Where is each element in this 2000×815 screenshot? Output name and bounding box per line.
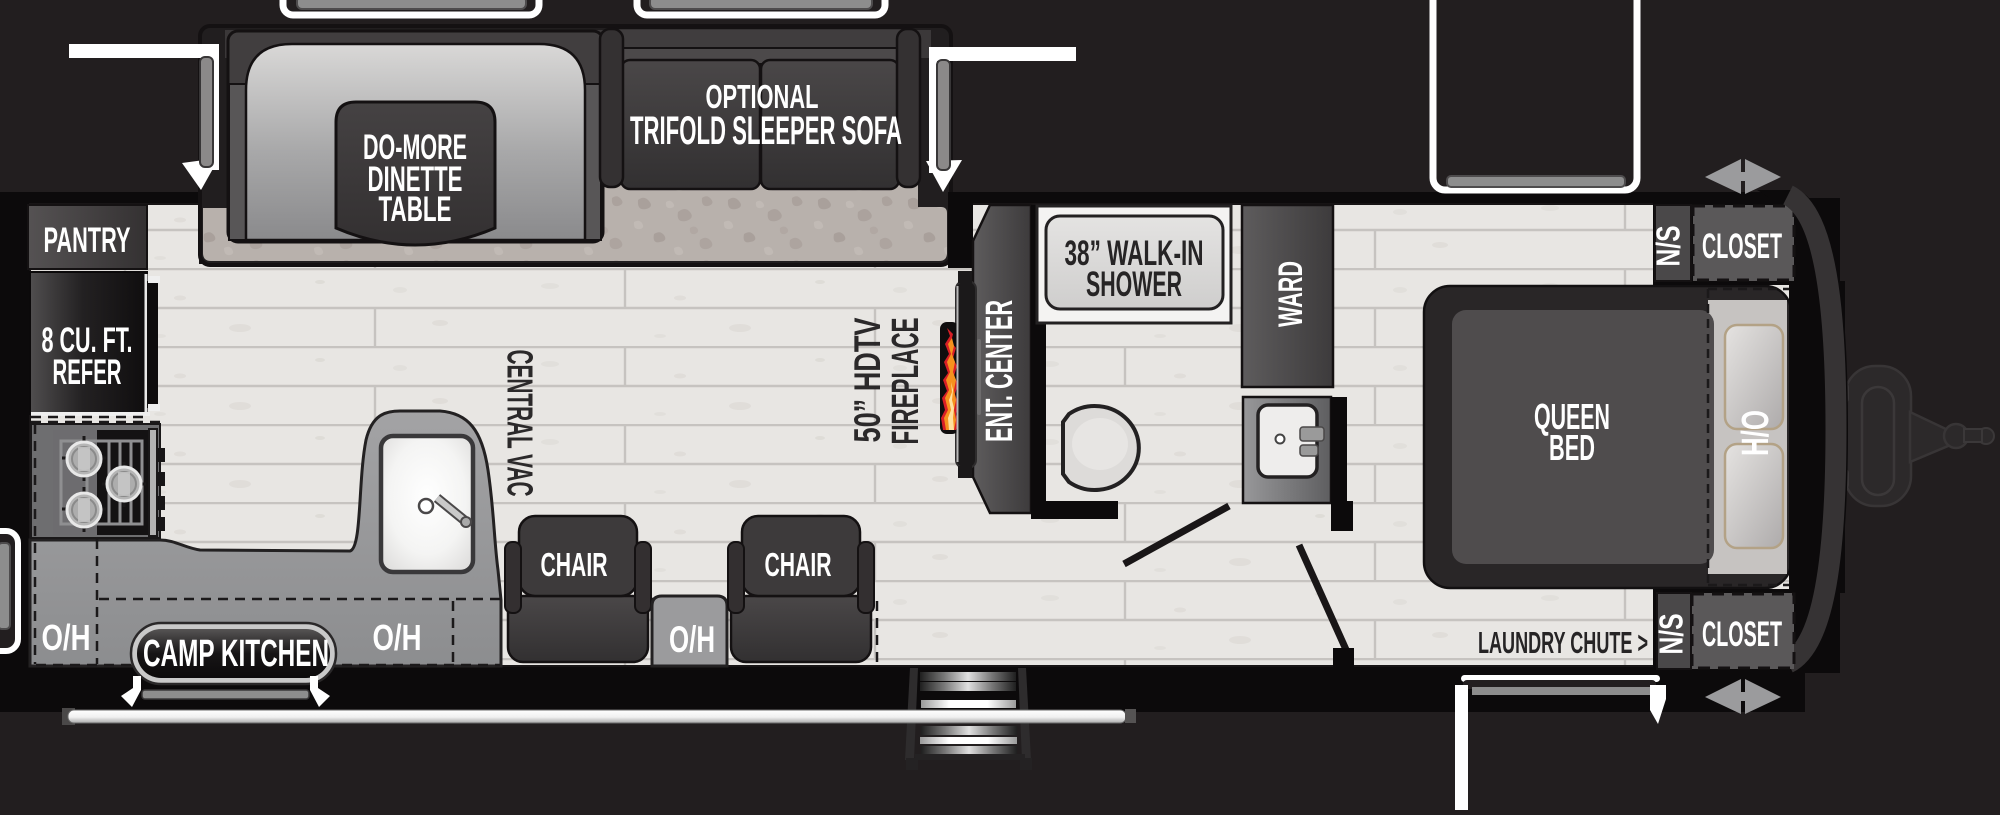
svg-text:CLOSET: CLOSET [1702, 615, 1782, 654]
svg-text:O/H: O/H [42, 617, 91, 658]
svg-text:CENTRAL VAC: CENTRAL VAC [499, 350, 540, 497]
svg-text:WARD: WARD [1272, 261, 1310, 327]
svg-text:PANTRY: PANTRY [44, 221, 131, 260]
svg-text:BED: BED [1549, 427, 1595, 468]
svg-text:CLOSET: CLOSET [1702, 227, 1782, 266]
svg-text:ENT. CENTER: ENT. CENTER [979, 300, 1021, 442]
svg-text:50” HDTV: 50” HDTV [847, 317, 888, 442]
svg-text:LAUNDRY CHUTE >: LAUNDRY CHUTE > [1478, 625, 1648, 660]
svg-text:N/S: N/S [1653, 614, 1690, 655]
svg-text:H/O: H/O [1735, 410, 1777, 456]
svg-text:TRIFOLD SLEEPER SOFA: TRIFOLD SLEEPER SOFA [630, 109, 902, 153]
svg-text:SHOWER: SHOWER [1086, 265, 1182, 304]
svg-text:FIREPLACE: FIREPLACE [885, 318, 927, 445]
svg-text:N/S: N/S [1650, 226, 1687, 267]
svg-text:CAMP KITCHEN: CAMP KITCHEN [143, 633, 329, 675]
svg-text:CHAIR: CHAIR [765, 546, 832, 583]
svg-text:O/H: O/H [669, 619, 715, 660]
svg-text:CHAIR: CHAIR [541, 546, 608, 583]
svg-text:REFER: REFER [53, 353, 122, 392]
svg-text:TABLE: TABLE [379, 190, 452, 229]
svg-text:O/H: O/H [373, 617, 422, 658]
